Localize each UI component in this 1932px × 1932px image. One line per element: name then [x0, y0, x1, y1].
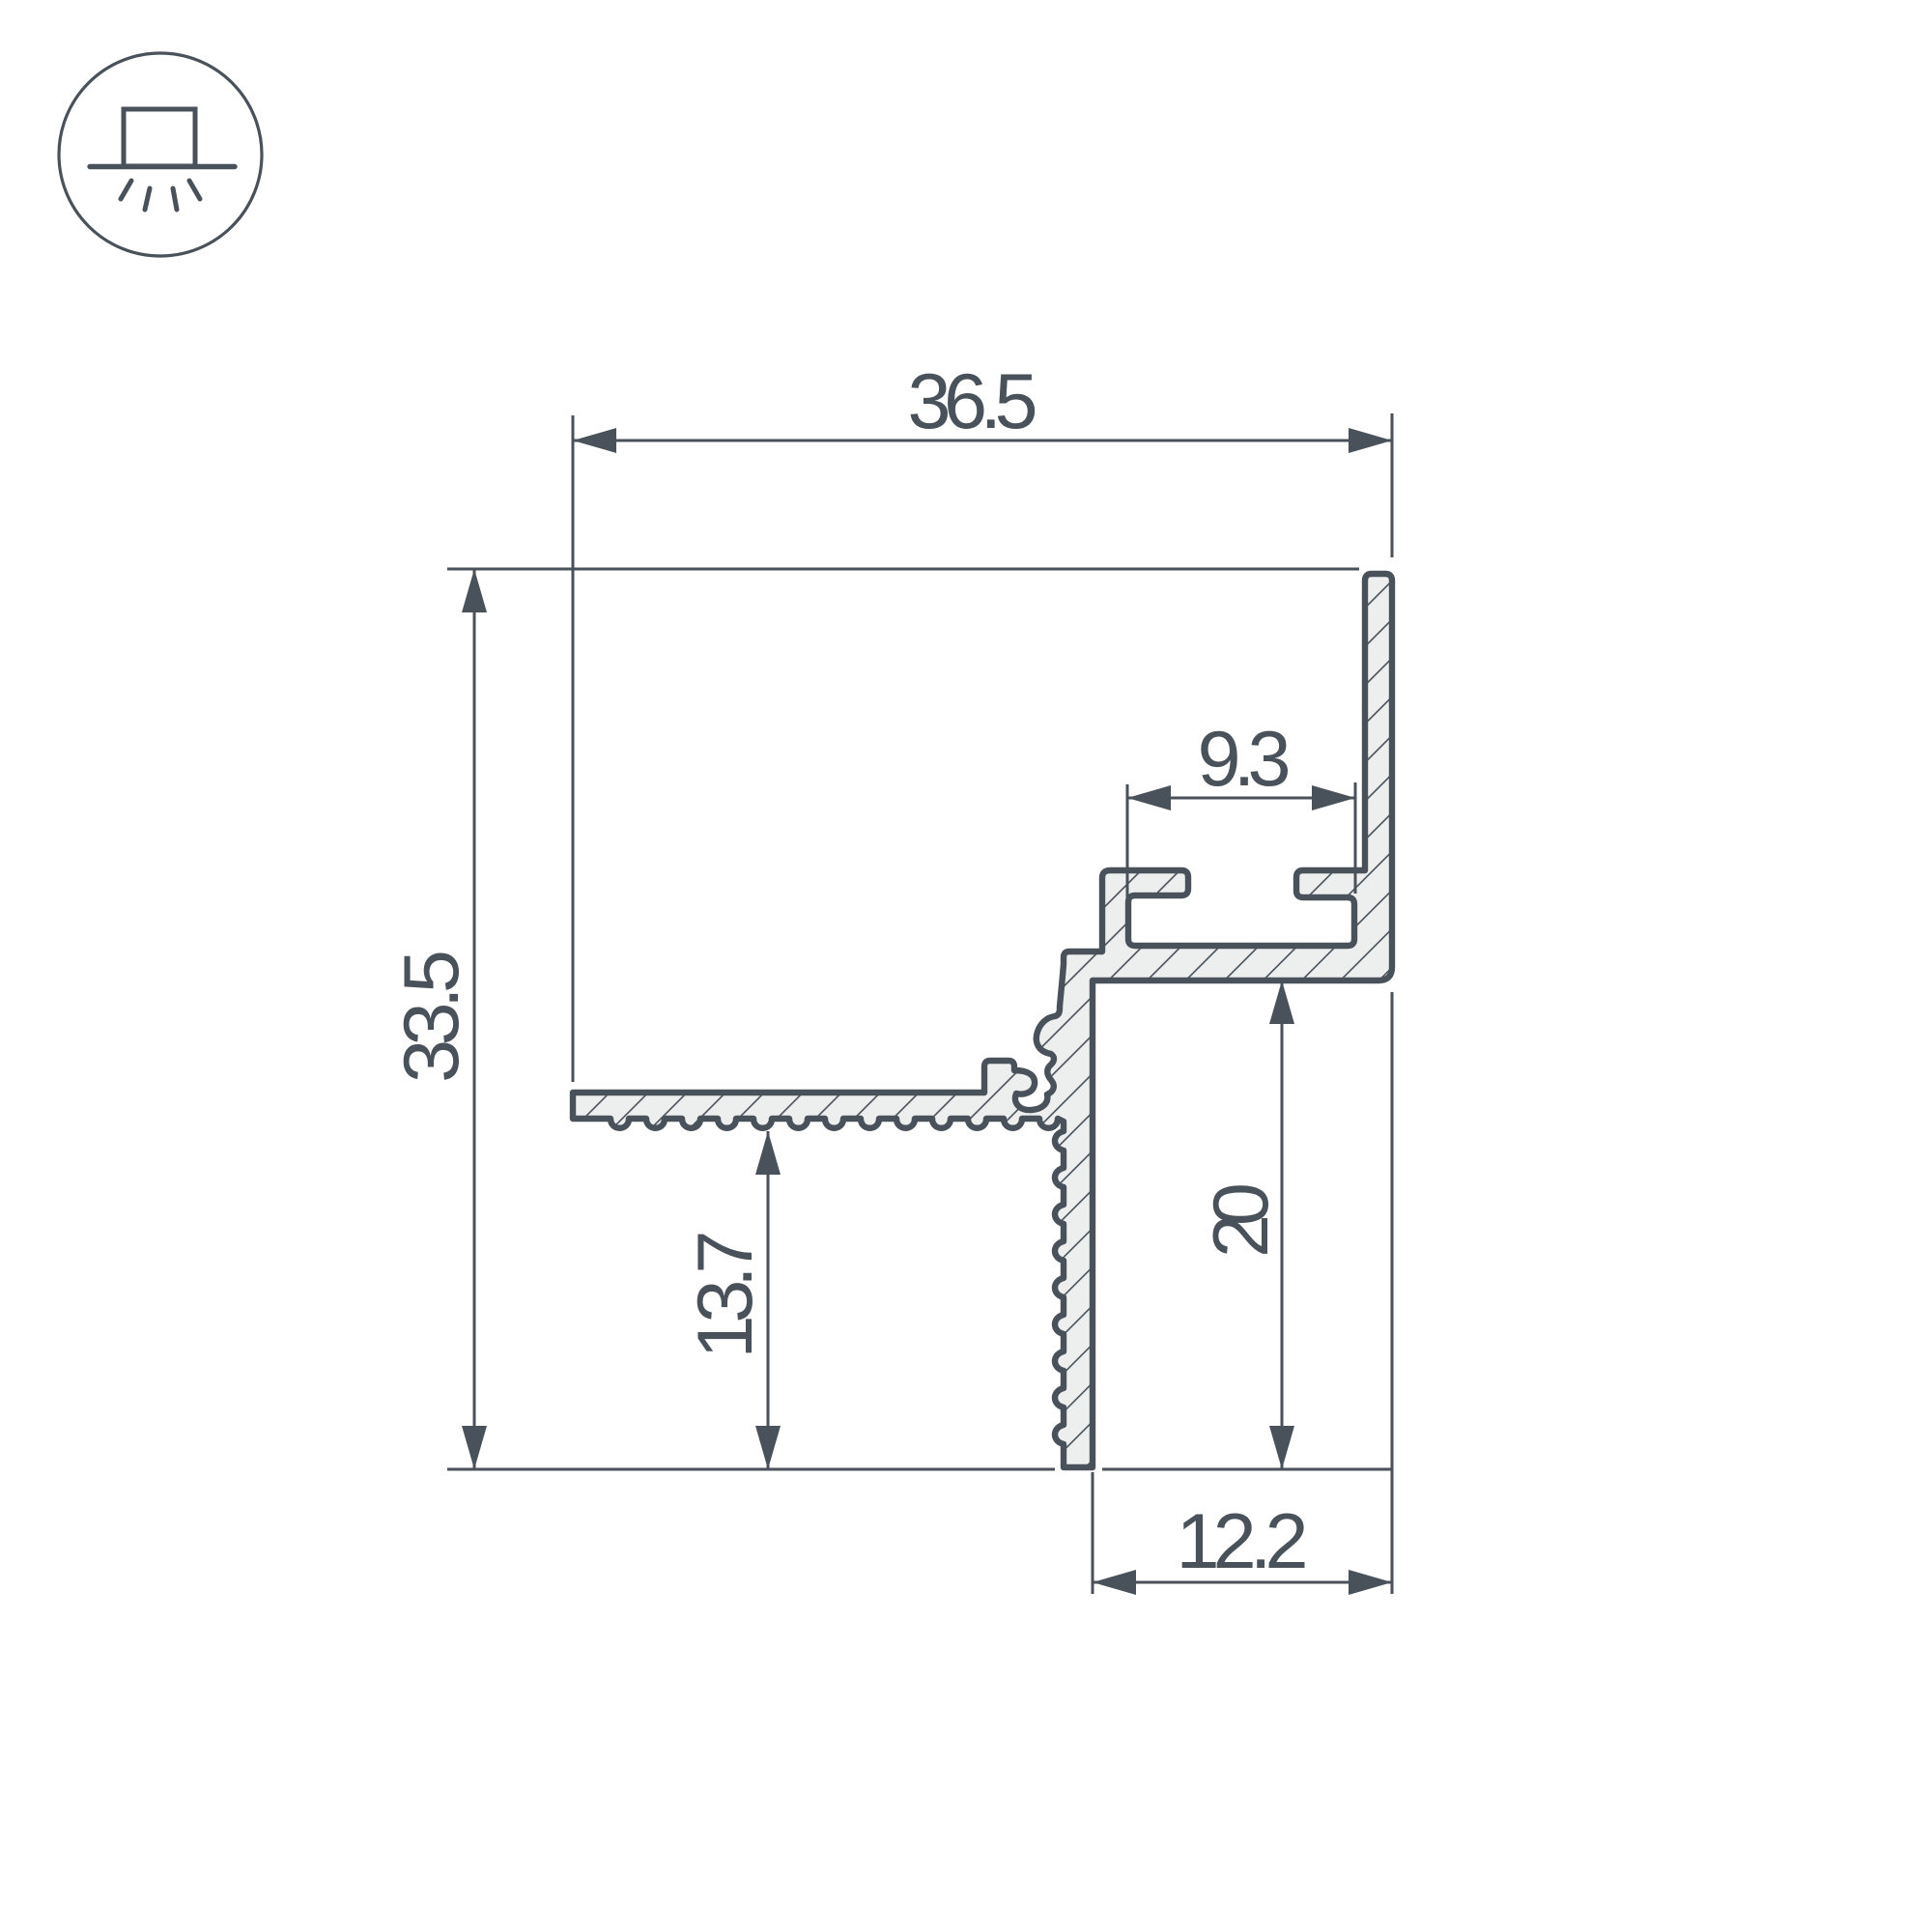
svg-text:36.5: 36.5: [908, 358, 1038, 445]
svg-text:9.3: 9.3: [1198, 716, 1292, 803]
svg-text:33.5: 33.5: [388, 950, 475, 1083]
svg-text:20: 20: [1198, 1182, 1285, 1258]
svg-text:13.7: 13.7: [682, 1231, 769, 1359]
svg-text:12.2: 12.2: [1177, 1498, 1309, 1585]
